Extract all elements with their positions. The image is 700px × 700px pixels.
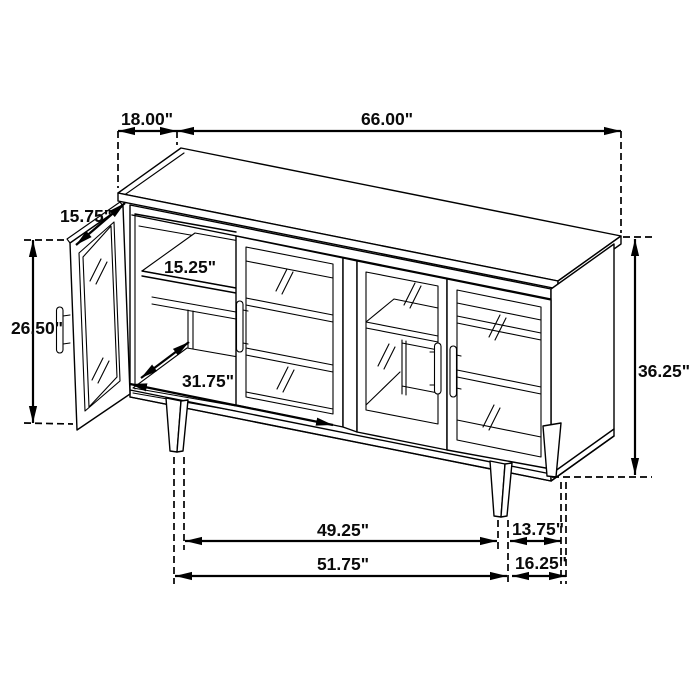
dim-label-leg-to-side: 13.75"	[512, 519, 564, 539]
dim-label-door-height: 26.50"	[11, 318, 63, 338]
dim-label-top-width: 66.00"	[361, 109, 413, 129]
dim-label-interior-width: 31.75"	[182, 371, 234, 391]
glass-door-2	[236, 236, 343, 427]
dim-label-top-depth: 18.00"	[121, 109, 173, 129]
glass-door-3	[357, 261, 447, 450]
ext-door-bottom	[24, 423, 73, 424]
door-4-frame	[447, 279, 551, 469]
dim-label-base-width: 51.75"	[317, 554, 369, 574]
dim-label-side-leg-span: 16.25"	[515, 553, 567, 573]
dim-label-shelf-depth: 15.25"	[164, 257, 216, 277]
open-door-panel	[70, 206, 130, 430]
glass-door-4	[447, 279, 551, 469]
dim-label-front-leg-span: 49.25"	[317, 520, 369, 540]
center-stile	[343, 258, 357, 432]
cabinet-drawing	[57, 148, 622, 517]
diagram-page: 18.00" 66.00" 15.75" 26.50" 15.25" 31.75…	[0, 0, 700, 700]
open-glass-door	[57, 202, 131, 430]
dimension-diagram-svg: 18.00" 66.00" 15.75" 26.50" 15.25" 31.75…	[0, 0, 700, 700]
dim-label-overall-height: 36.25"	[638, 361, 690, 381]
dim-label-door-width: 15.75"	[60, 206, 112, 226]
